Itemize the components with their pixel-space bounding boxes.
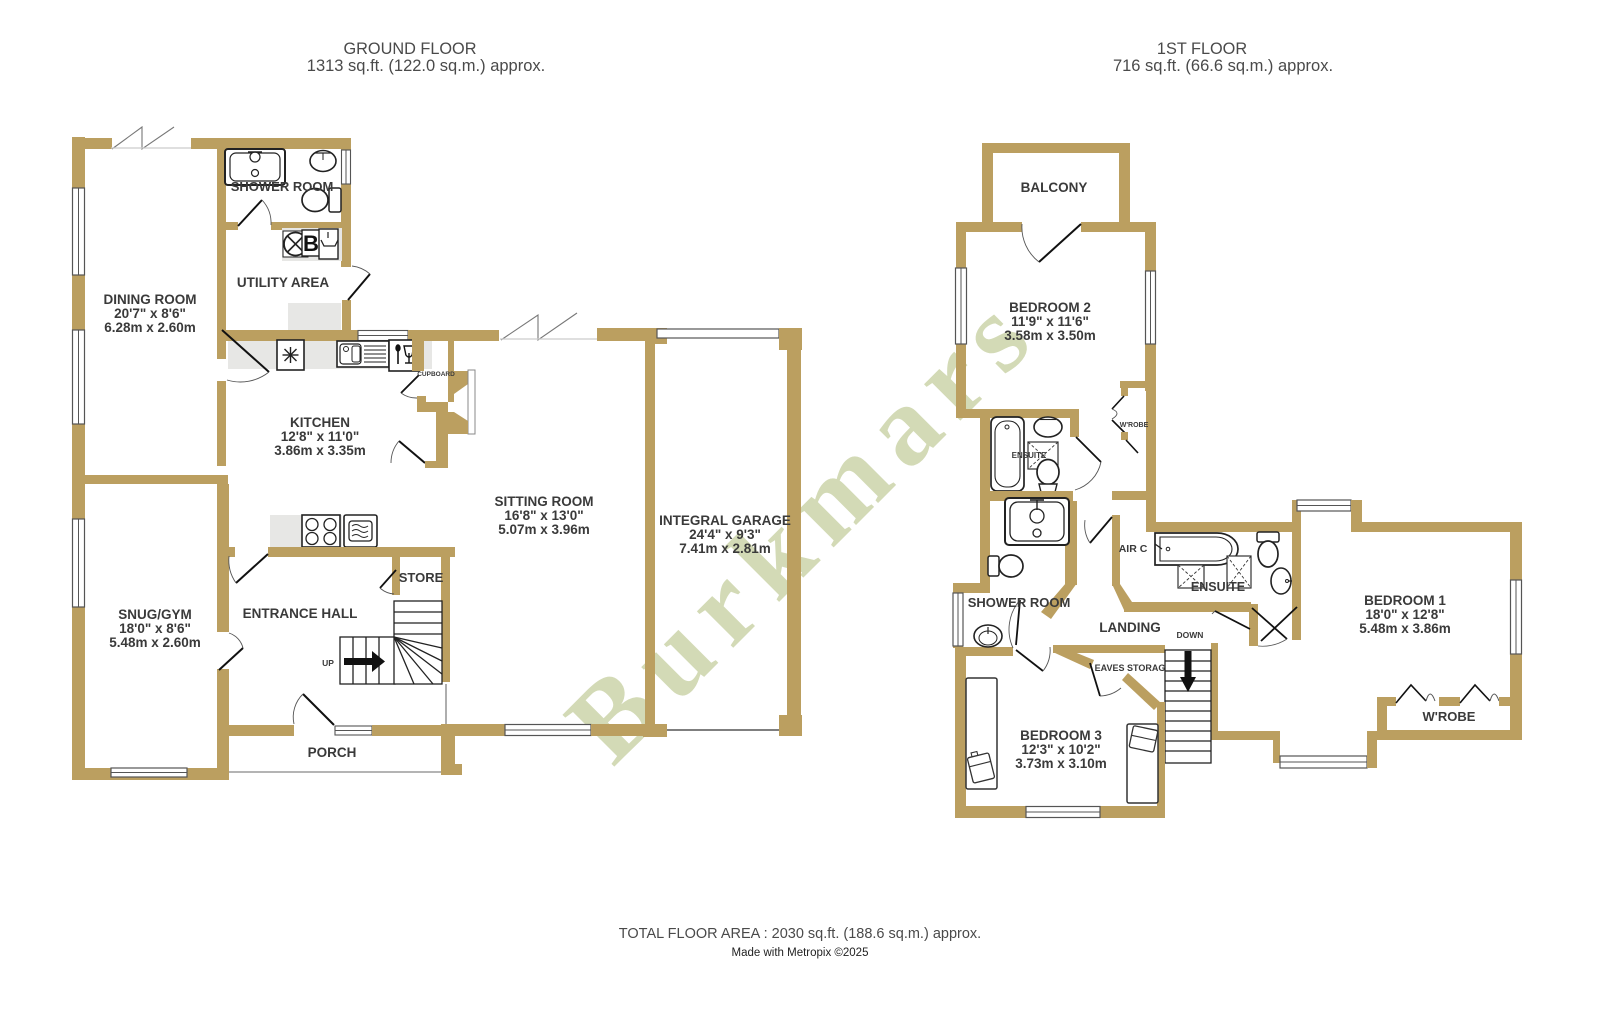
svg-text:DINING ROOM: DINING ROOM (104, 292, 197, 307)
svg-text:SNUG/GYM: SNUG/GYM (118, 607, 192, 622)
svg-text:3.73m x 3.10m: 3.73m x 3.10m (1015, 756, 1107, 771)
svg-text:UTILITY AREA: UTILITY AREA (237, 275, 330, 290)
svg-text:24'4" x 9'3": 24'4" x 9'3" (689, 527, 761, 542)
svg-text:KITCHEN: KITCHEN (290, 415, 350, 430)
svg-text:GROUND FLOOR: GROUND FLOOR (344, 40, 477, 58)
svg-text:PORCH: PORCH (308, 745, 357, 760)
svg-text:DOWN: DOWN (1177, 630, 1204, 640)
svg-text:20'7" x 8'6": 20'7" x 8'6" (114, 306, 186, 321)
svg-text:BEDROOM 3: BEDROOM 3 (1020, 728, 1102, 743)
svg-text:18'0" x 8'6": 18'0" x 8'6" (119, 621, 191, 636)
svg-text:BEDROOM 2: BEDROOM 2 (1009, 300, 1091, 315)
svg-text:6.28m x 2.60m: 6.28m x 2.60m (104, 320, 196, 335)
svg-text:5.07m x 3.96m: 5.07m x 3.96m (498, 522, 590, 537)
svg-text:BEDROOM 1: BEDROOM 1 (1364, 593, 1446, 608)
svg-text:W'ROBE: W'ROBE (1423, 709, 1476, 724)
svg-text:W'ROBE: W'ROBE (1120, 422, 1149, 429)
svg-text:11'9" x 11'6": 11'9" x 11'6" (1011, 314, 1089, 329)
svg-text:AIR C: AIR C (1119, 543, 1148, 555)
svg-text:EAVES STORAGE: EAVES STORAGE (1095, 663, 1172, 673)
svg-text:1313 sq.ft. (122.0 sq.m.) appr: 1313 sq.ft. (122.0 sq.m.) approx. (307, 57, 545, 75)
svg-text:3.86m x 3.35m: 3.86m x 3.35m (274, 443, 366, 458)
svg-text:ENSUITE: ENSUITE (1191, 580, 1245, 594)
svg-text:SHOWER ROOM: SHOWER ROOM (231, 179, 334, 194)
svg-text:STORE: STORE (399, 570, 444, 585)
svg-text:Made with Metropix ©2025: Made with Metropix ©2025 (732, 947, 869, 959)
svg-text:B: B (303, 231, 319, 256)
svg-text:7.41m x 2.81m: 7.41m x 2.81m (679, 541, 771, 556)
svg-text:5.48m x 3.86m: 5.48m x 3.86m (1359, 621, 1451, 636)
svg-text:1ST FLOOR: 1ST FLOOR (1157, 40, 1247, 58)
svg-text:CUPBOARD: CUPBOARD (417, 371, 455, 378)
svg-text:TOTAL FLOOR AREA : 2030 sq.ft.: TOTAL FLOOR AREA : 2030 sq.ft. (188.6 sq… (619, 926, 981, 942)
svg-text:18'0" x 12'8": 18'0" x 12'8" (1365, 607, 1444, 622)
svg-text:16'8" x 13'0": 16'8" x 13'0" (504, 508, 583, 523)
svg-text:INTEGRAL GARAGE: INTEGRAL GARAGE (659, 513, 791, 528)
svg-text:3.58m x 3.50m: 3.58m x 3.50m (1004, 328, 1096, 343)
svg-text:LANDING: LANDING (1099, 620, 1161, 635)
svg-text:ENTRANCE HALL: ENTRANCE HALL (243, 606, 358, 621)
svg-text:SITTING ROOM: SITTING ROOM (495, 494, 594, 509)
svg-text:12'8" x 11'0": 12'8" x 11'0" (281, 429, 360, 444)
svg-text:12'3" x 10'2": 12'3" x 10'2" (1021, 742, 1100, 757)
svg-text:SHOWER ROOM: SHOWER ROOM (968, 595, 1071, 610)
svg-text:UP: UP (322, 658, 334, 668)
svg-text:ENSUITE: ENSUITE (1012, 451, 1047, 460)
svg-text:5.48m x 2.60m: 5.48m x 2.60m (109, 635, 201, 650)
svg-text:BALCONY: BALCONY (1021, 180, 1088, 195)
svg-text:716 sq.ft. (66.6 sq.m.) approx: 716 sq.ft. (66.6 sq.m.) approx. (1113, 57, 1333, 75)
